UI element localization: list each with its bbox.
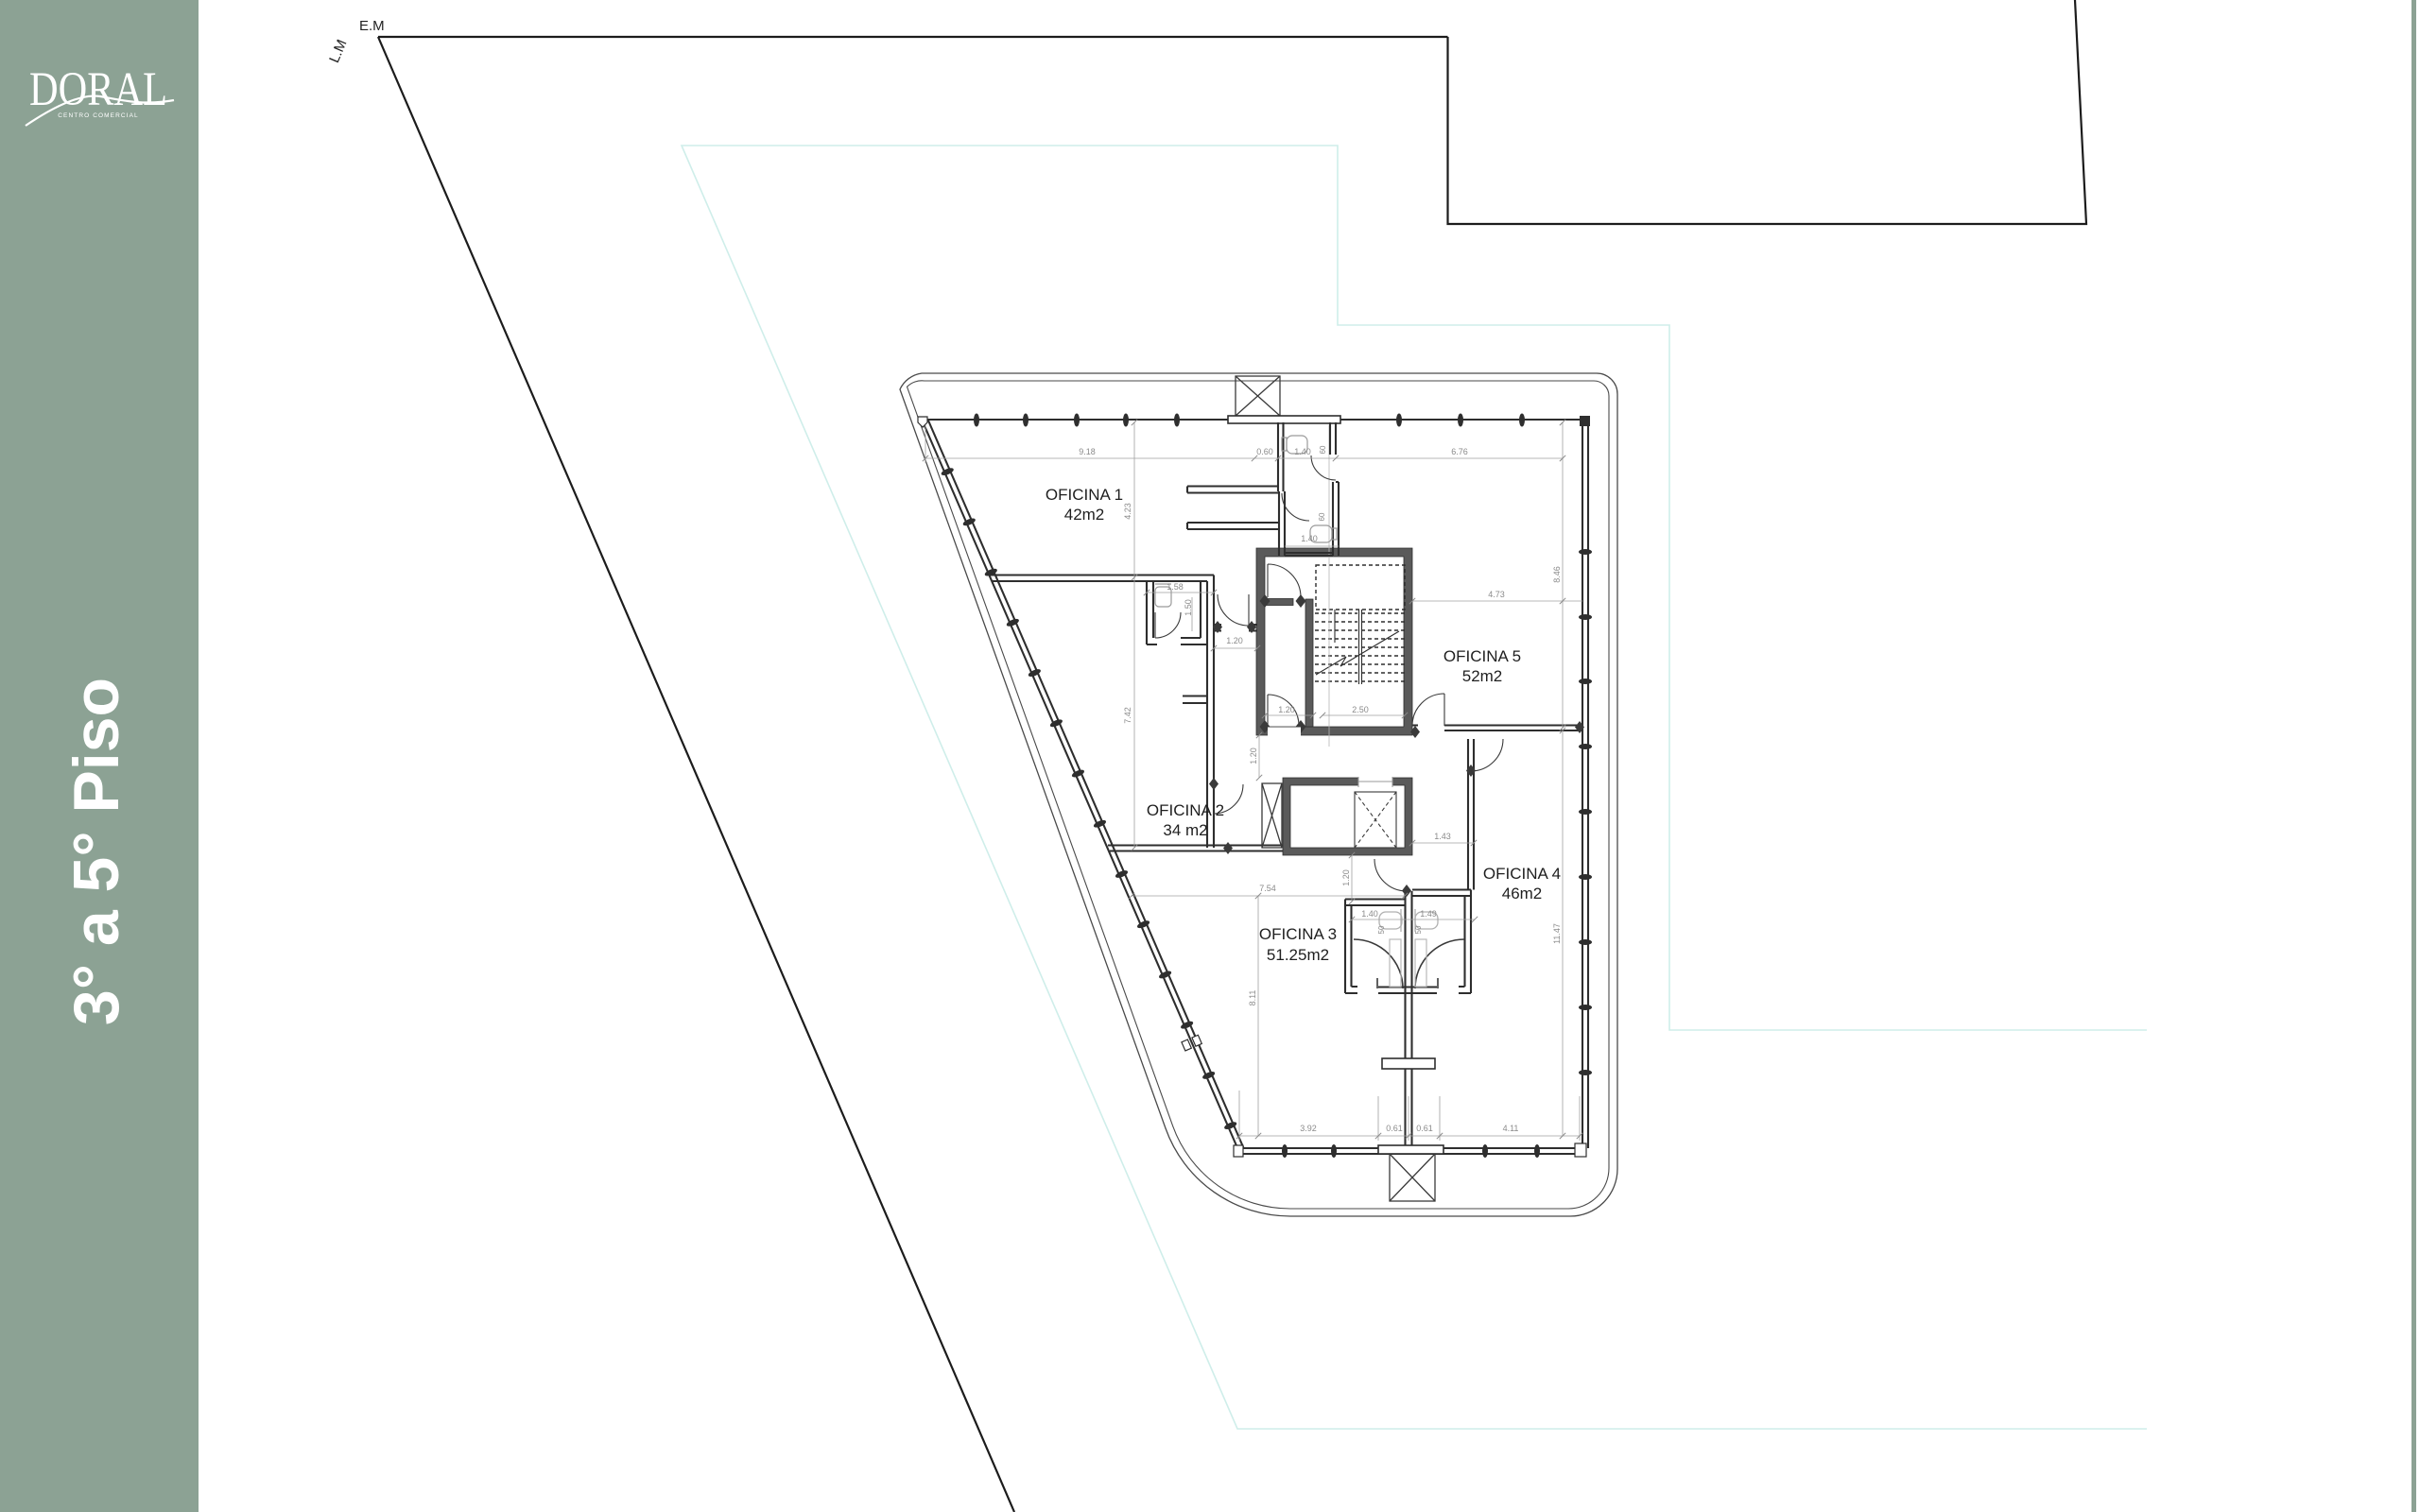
svg-text:6.76: 6.76 bbox=[1451, 447, 1468, 456]
svg-text:8.46: 8.46 bbox=[1552, 566, 1562, 583]
svg-text:1.49: 1.49 bbox=[1420, 909, 1437, 919]
svg-text:1.43: 1.43 bbox=[1434, 832, 1451, 841]
svg-text:7.54: 7.54 bbox=[1259, 884, 1276, 893]
svg-text:0.61: 0.61 bbox=[1416, 1124, 1433, 1133]
svg-text:CENTRO COMERCIAL: CENTRO COMERCIAL bbox=[58, 112, 139, 119]
svg-text:OFICINA 1: OFICINA 1 bbox=[1046, 486, 1123, 504]
svg-text:11.47: 11.47 bbox=[1552, 923, 1562, 944]
svg-text:42m2: 42m2 bbox=[1064, 506, 1105, 524]
svg-text:OFICINA 3: OFICINA 3 bbox=[1259, 925, 1337, 943]
svg-text:34 m2: 34 m2 bbox=[1163, 821, 1207, 839]
svg-text:2.50: 2.50 bbox=[1352, 705, 1369, 714]
svg-text:E.M: E.M bbox=[359, 18, 385, 34]
svg-text:50: 50 bbox=[1414, 925, 1423, 934]
svg-text:1.20: 1.20 bbox=[1278, 705, 1295, 714]
svg-text:DORAL: DORAL bbox=[29, 63, 167, 115]
svg-text:1.40: 1.40 bbox=[1301, 534, 1318, 543]
svg-text:9.18: 9.18 bbox=[1079, 447, 1096, 456]
svg-text:7.42: 7.42 bbox=[1123, 707, 1132, 724]
svg-text:OFICINA 5: OFICINA 5 bbox=[1443, 647, 1521, 665]
svg-text:0.61: 0.61 bbox=[1386, 1124, 1403, 1133]
svg-text:3.92: 3.92 bbox=[1300, 1124, 1317, 1133]
svg-text:1.20: 1.20 bbox=[1249, 747, 1258, 765]
svg-text:60: 60 bbox=[1319, 445, 1327, 454]
svg-text:0.60: 0.60 bbox=[1256, 447, 1273, 456]
svg-text:1.58: 1.58 bbox=[1167, 582, 1184, 592]
svg-text:1.20: 1.20 bbox=[1341, 869, 1351, 886]
svg-text:OFICINA 4: OFICINA 4 bbox=[1483, 865, 1561, 883]
svg-text:1.40: 1.40 bbox=[1294, 447, 1311, 456]
svg-text:60: 60 bbox=[1318, 512, 1326, 521]
svg-text:50: 50 bbox=[1377, 925, 1386, 934]
svg-text:52m2: 52m2 bbox=[1462, 667, 1503, 685]
svg-text:4.73: 4.73 bbox=[1488, 590, 1505, 599]
svg-text:1.50: 1.50 bbox=[1184, 599, 1193, 616]
svg-text:1.40: 1.40 bbox=[1361, 909, 1378, 919]
svg-text:4.23: 4.23 bbox=[1123, 503, 1132, 520]
svg-text:8.11: 8.11 bbox=[1248, 990, 1257, 1006]
svg-text:4.11: 4.11 bbox=[1503, 1124, 1519, 1133]
svg-text:46m2: 46m2 bbox=[1502, 885, 1543, 902]
svg-text:3° a 5° Piso: 3° a 5° Piso bbox=[60, 678, 132, 1025]
svg-text:OFICINA 2: OFICINA 2 bbox=[1147, 801, 1224, 819]
svg-text:1.20: 1.20 bbox=[1226, 636, 1243, 645]
svg-text:51.25m2: 51.25m2 bbox=[1267, 946, 1329, 964]
